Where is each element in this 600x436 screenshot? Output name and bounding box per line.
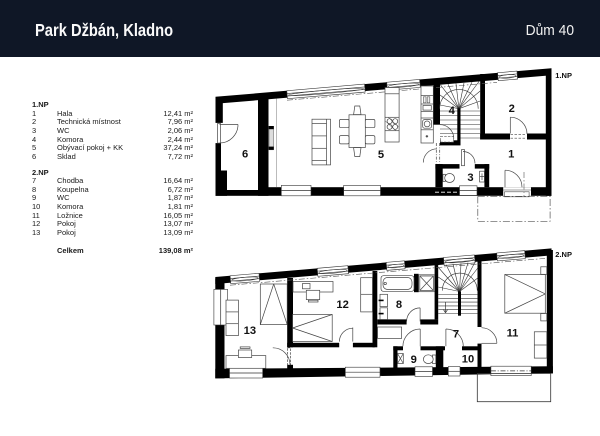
svg-text:2: 2 (509, 103, 515, 115)
svg-text:11: 11 (507, 328, 519, 340)
svg-text:6: 6 (242, 149, 248, 161)
svg-text:10: 10 (462, 354, 474, 366)
svg-text:13: 13 (244, 325, 256, 337)
svg-text:8: 8 (396, 299, 402, 311)
svg-text:3: 3 (467, 172, 473, 184)
svg-text:4: 4 (449, 105, 456, 117)
svg-text:7: 7 (453, 329, 459, 341)
svg-text:2.NP: 2.NP (555, 250, 572, 259)
svg-text:9: 9 (411, 354, 417, 366)
svg-text:12: 12 (336, 299, 348, 311)
svg-text:1.NP: 1.NP (555, 71, 572, 80)
svg-text:1: 1 (508, 149, 514, 161)
svg-text:5: 5 (378, 149, 384, 161)
